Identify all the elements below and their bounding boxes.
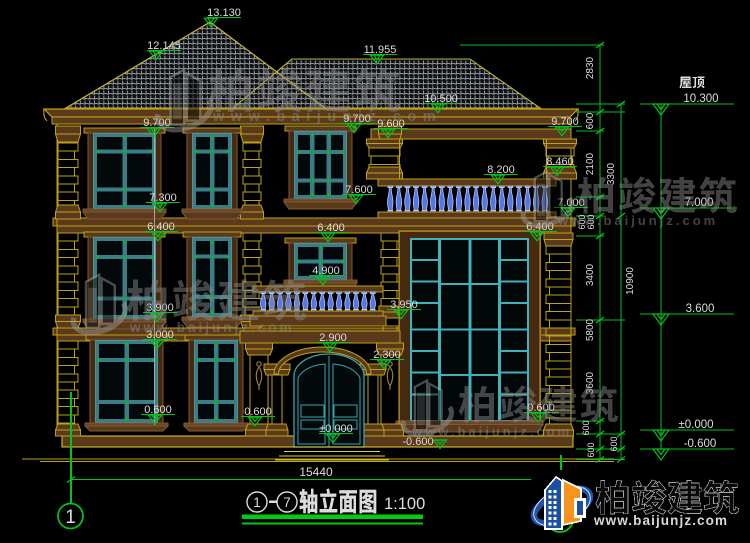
svg-text:www.baijunjz.com: www.baijunjz.com: [557, 213, 718, 228]
svg-text:2830: 2830: [585, 56, 596, 79]
svg-text:www.baijunjz.com: www.baijunjz.com: [593, 513, 728, 528]
svg-text:±0.000: ±0.000: [678, 419, 713, 431]
svg-text:600: 600: [581, 420, 591, 435]
svg-text:3.600: 3.600: [686, 303, 715, 315]
svg-text:2100: 2100: [585, 152, 596, 175]
svg-text:www.baijunjz.com: www.baijunjz.com: [411, 424, 572, 439]
svg-text:600: 600: [609, 436, 619, 451]
svg-text:www.baijunjz.com: www.baijunjz.com: [212, 109, 442, 125]
svg-text:1: 1: [253, 495, 261, 510]
svg-text:600: 600: [586, 442, 596, 457]
svg-text:600: 600: [585, 112, 596, 129]
svg-text:15440: 15440: [299, 465, 333, 479]
svg-text:1: 1: [65, 507, 76, 528]
svg-text:www.baijunjz.com: www.baijunjz.com: [129, 320, 295, 335]
svg-text:10.300: 10.300: [683, 93, 718, 105]
svg-text:7: 7: [283, 495, 291, 510]
svg-text:10900: 10900: [625, 267, 636, 295]
svg-text:3400: 3400: [585, 263, 596, 286]
svg-text:3300: 3300: [606, 162, 617, 185]
svg-text:-0.600: -0.600: [684, 438, 717, 450]
svg-text:1:100: 1:100: [384, 495, 425, 513]
svg-text:5800: 5800: [585, 318, 596, 341]
